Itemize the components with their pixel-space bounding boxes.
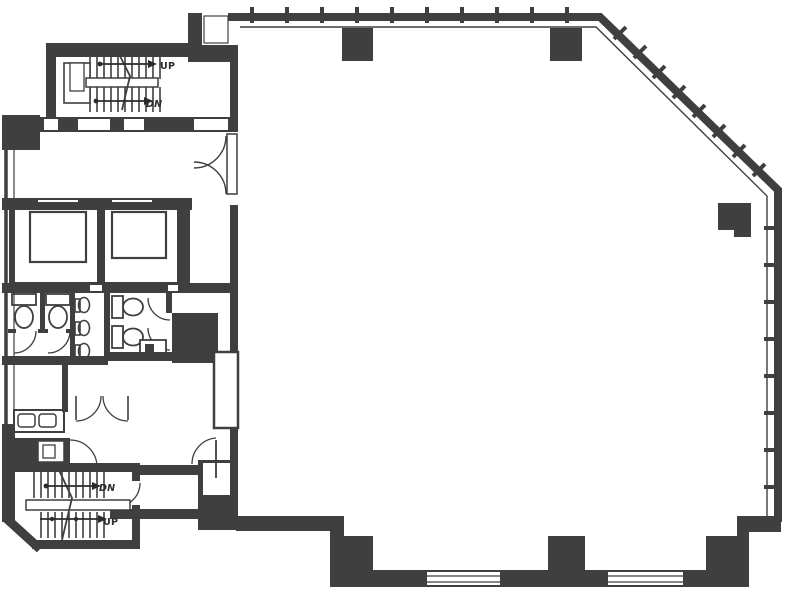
door-gap bbox=[90, 285, 102, 291]
stair-center-rail bbox=[86, 78, 158, 87]
arrow-origin-dot bbox=[50, 517, 54, 521]
stall-front-stub bbox=[38, 329, 48, 333]
south-window-opening bbox=[427, 572, 500, 585]
south-window-opening bbox=[608, 572, 683, 585]
door-gap bbox=[78, 119, 110, 130]
main-space-west-wall bbox=[230, 428, 238, 462]
stair-center-rail bbox=[26, 500, 130, 510]
stall-front-stub bbox=[8, 329, 16, 333]
stair-north-left-wall bbox=[46, 43, 56, 124]
womens-room-south-wall bbox=[104, 352, 174, 361]
door-gap bbox=[194, 119, 228, 130]
vanity-east-wall bbox=[62, 362, 68, 412]
column bbox=[342, 28, 373, 61]
mens-room-south-wall bbox=[2, 356, 108, 365]
duct-riser bbox=[214, 352, 238, 428]
stair-south-left-wall bbox=[5, 463, 14, 523]
shaft-block bbox=[172, 313, 218, 363]
stair-landing-rail-inner bbox=[70, 63, 84, 91]
stair-south-right-wall bbox=[132, 463, 140, 481]
column bbox=[548, 536, 585, 572]
main-space-west-wall bbox=[230, 205, 238, 355]
restroom-north-wall bbox=[2, 283, 238, 293]
door-leaf bbox=[227, 134, 237, 194]
column bbox=[550, 28, 582, 61]
stair-north-up-label: UP bbox=[160, 61, 175, 72]
stair-south-bottom-wall bbox=[32, 540, 140, 549]
stair-north-dn-label: DN bbox=[146, 99, 162, 110]
stair-south-dn-label: DN bbox=[99, 483, 115, 494]
south-wall bbox=[330, 570, 749, 587]
floor-plan: UP DN DN UP bbox=[0, 0, 787, 601]
stall-partition bbox=[40, 293, 45, 331]
womens-room-east-wall bbox=[166, 291, 172, 313]
door-gap bbox=[124, 119, 144, 130]
column bbox=[706, 536, 745, 572]
door-gap bbox=[44, 119, 58, 130]
arrow-origin-dot bbox=[94, 99, 99, 104]
arrow-origin-dot bbox=[44, 484, 49, 489]
stair-south-up-label: UP bbox=[103, 517, 118, 528]
arrow-origin-dot bbox=[98, 62, 103, 67]
door-gap bbox=[168, 285, 178, 291]
stair-south-top-wall bbox=[2, 463, 140, 472]
corridor-north-wall bbox=[138, 465, 203, 475]
arrow-origin-dot bbox=[74, 517, 78, 521]
west-wall-block bbox=[2, 115, 40, 150]
mop-sink bbox=[38, 441, 64, 462]
womens-room-west-wall bbox=[104, 291, 110, 359]
stair-south-right-wall bbox=[132, 505, 140, 549]
north-niche bbox=[204, 16, 228, 43]
south-step-wall bbox=[236, 516, 344, 531]
floor-plan-drawing: UP DN DN UP bbox=[0, 0, 787, 601]
alcove-west-wall bbox=[182, 205, 190, 288]
column bbox=[340, 536, 373, 572]
